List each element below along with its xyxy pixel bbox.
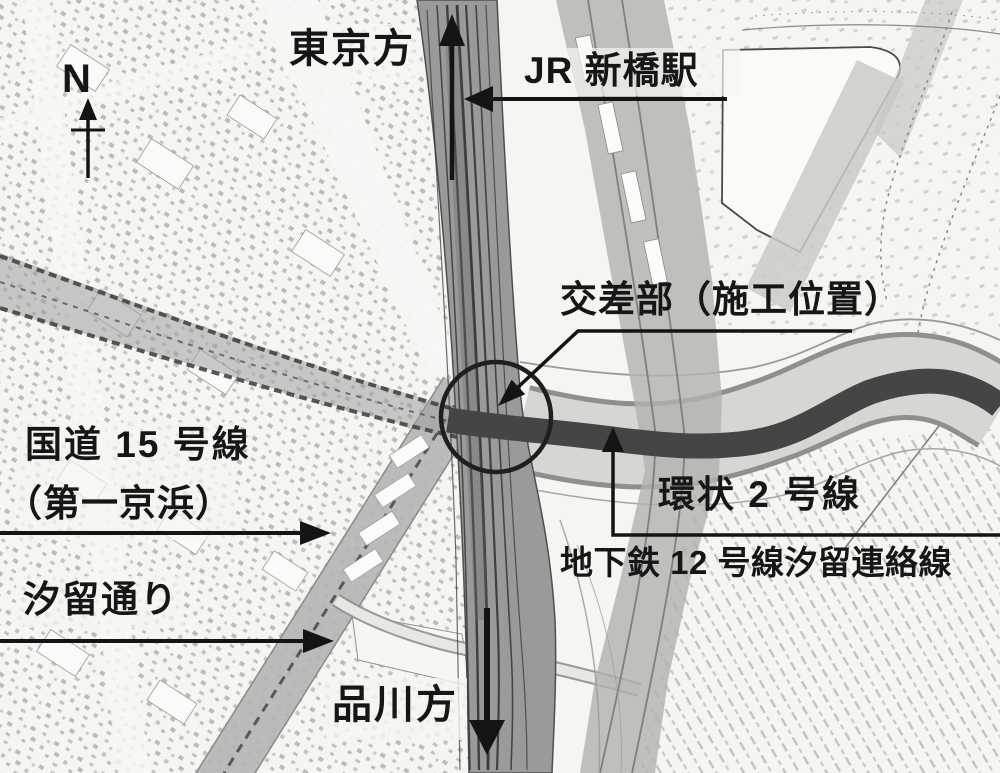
jr-shimbashi-station-label: JR 新橋駅 bbox=[524, 52, 699, 91]
daiichi-keihin-label: （第一京浜） bbox=[5, 485, 233, 524]
intersection-construction-label: 交差部（施工位置） bbox=[560, 281, 902, 320]
basemap bbox=[0, 0, 1000, 773]
north-label: N bbox=[62, 58, 91, 100]
shiodome-street-label: 汐留通り bbox=[23, 581, 179, 620]
shinagawa-direction-label: 品川方 bbox=[332, 684, 458, 726]
subway-line12-label: 地下鉄 12 号線汐留連絡線 bbox=[560, 546, 952, 581]
construction-location-map: N 東京方 JR 新橋駅 交差部（施工位置） 国道 15 号線 （第一京浜） 汐… bbox=[0, 0, 1000, 773]
ring-road-2-label: 環状 2 号線 bbox=[658, 476, 861, 515]
tokyo-direction-label: 東京方 bbox=[289, 28, 415, 70]
route15-label: 国道 15 号線 bbox=[25, 426, 251, 465]
